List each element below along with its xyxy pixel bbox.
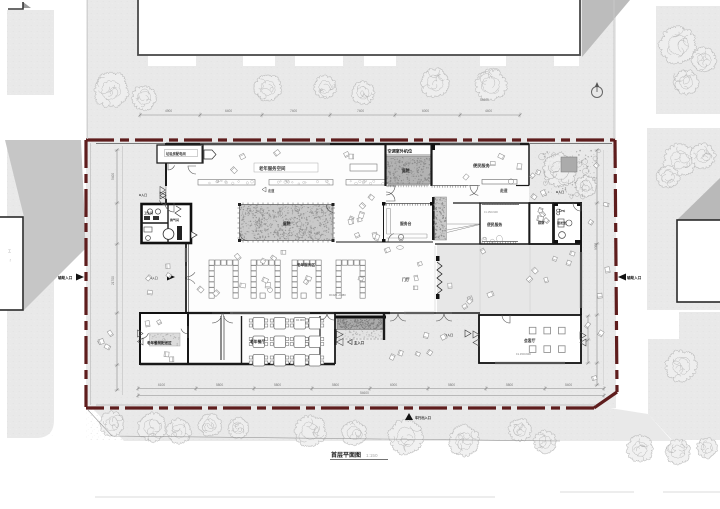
svg-text:5800: 5800 <box>216 383 223 387</box>
svg-text:4400: 4400 <box>485 109 492 113</box>
svg-text:6000: 6000 <box>422 109 429 113</box>
svg-text:6400: 6400 <box>225 109 232 113</box>
svg-text:门厅: 门厅 <box>402 277 410 282</box>
svg-text:服务台: 服务台 <box>400 221 412 226</box>
svg-text:54600: 54600 <box>480 98 489 102</box>
svg-text:5800: 5800 <box>506 383 513 387</box>
svg-text:垃圾房配电间: 垃圾房配电间 <box>166 151 186 156</box>
svg-text:±1.150×900: ±1.150×900 <box>484 210 498 214</box>
svg-text:庭院: 庭院 <box>283 221 291 226</box>
svg-text:6000: 6000 <box>390 383 397 387</box>
svg-text:辅助入口: 辅助入口 <box>58 275 73 280</box>
svg-text:7400: 7400 <box>290 109 297 113</box>
svg-text:棋牌: 棋牌 <box>538 220 545 225</box>
svg-text:老年服务空间: 老年服务空间 <box>259 165 286 172</box>
svg-text:走道: 走道 <box>499 188 508 193</box>
svg-text:换气间: 换气间 <box>170 217 179 222</box>
svg-text:便民服务: 便民服务 <box>487 222 502 227</box>
svg-text:7400: 7400 <box>357 109 364 113</box>
svg-text:5800: 5800 <box>332 383 339 387</box>
svg-text:±0.000: ±0.000 <box>296 318 305 322</box>
svg-text:便民服务: 便民服务 <box>473 162 491 169</box>
svg-text:6100: 6100 <box>158 383 165 387</box>
svg-text:工: 工 <box>8 249 11 253</box>
svg-text:卫生间: 卫生间 <box>144 210 153 215</box>
svg-text:9000: 9000 <box>594 243 598 250</box>
svg-text:±0.020 ~0.450: ±0.020 ~0.450 <box>329 293 346 297</box>
svg-text:5400: 5400 <box>565 383 572 387</box>
svg-text:空调室外机位: 空调室外机位 <box>388 148 413 154</box>
svg-text:1:150: 1:150 <box>366 453 378 458</box>
svg-text:车行出入口: 车行出入口 <box>415 415 431 420</box>
svg-text:辅助入口: 辅助入口 <box>627 275 642 280</box>
svg-text:主入口: 主入口 <box>354 340 365 345</box>
svg-text:庭院: 庭院 <box>402 168 410 173</box>
svg-text:5800: 5800 <box>448 383 455 387</box>
svg-text:理发室: 理发室 <box>557 220 566 225</box>
svg-text:首层平面图: 首层平面图 <box>331 451 361 459</box>
svg-text:走道: 走道 <box>267 188 275 193</box>
svg-text:54600: 54600 <box>360 391 369 395</box>
svg-text:老年服务区: 老年服务区 <box>296 262 315 267</box>
svg-text:老年餐厨配送区: 老年餐厨配送区 <box>146 340 172 345</box>
svg-text:会客厅: 会客厅 <box>524 338 536 343</box>
svg-text:5400: 5400 <box>111 173 115 180</box>
svg-text:B入口: B入口 <box>556 189 564 194</box>
svg-text:21700: 21700 <box>111 276 115 285</box>
svg-text:老年餐厅: 老年餐厅 <box>250 339 265 344</box>
svg-text:±1.150×900: ±1.150×900 <box>516 352 531 356</box>
svg-text:4900: 4900 <box>165 109 172 113</box>
svg-text:「: 「 <box>8 258 11 263</box>
svg-text:5800: 5800 <box>274 383 281 387</box>
svg-text:B入口: B入口 <box>139 192 147 197</box>
